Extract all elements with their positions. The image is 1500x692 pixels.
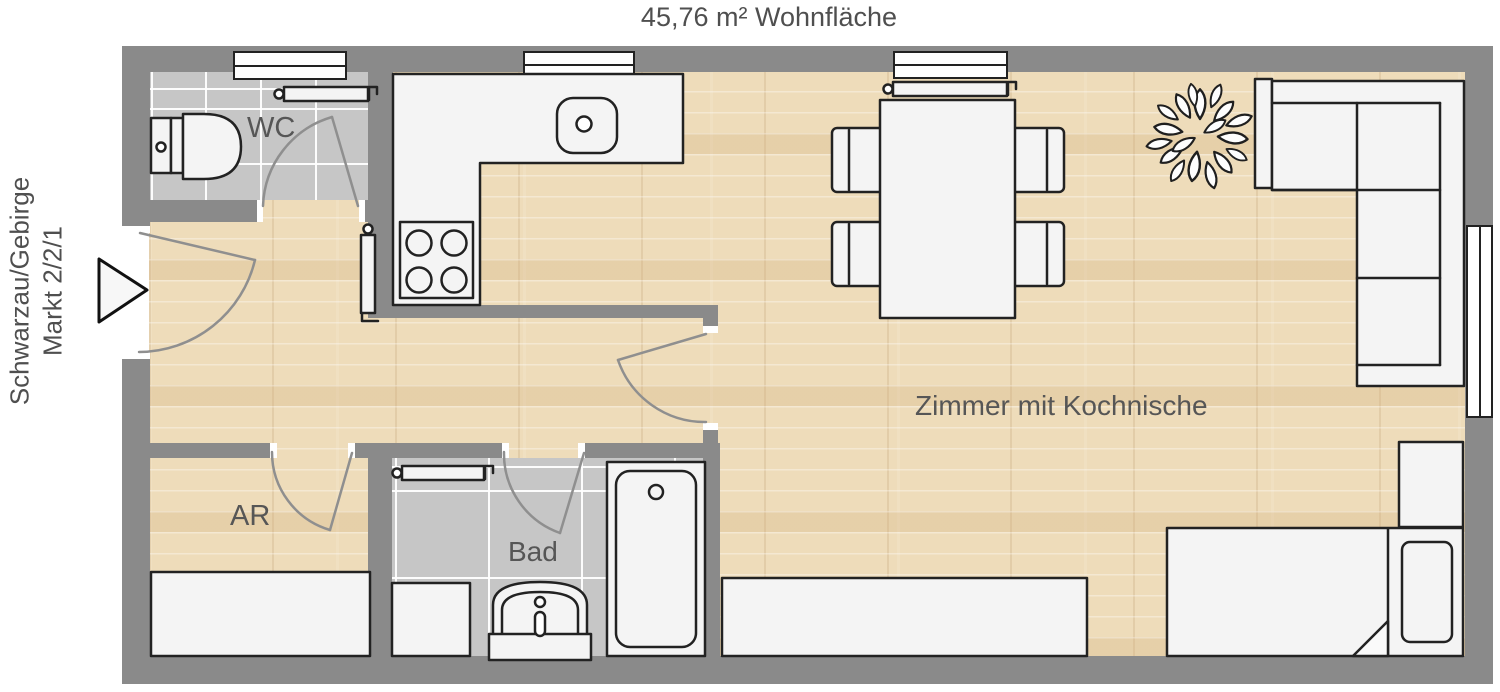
washing-machine (392, 583, 470, 656)
radiator (361, 225, 378, 322)
nightstand (1399, 442, 1463, 527)
address-label: Schwarzau/Gebirge Markt 2/2/1 (4, 177, 69, 405)
radiator (393, 466, 494, 480)
floor-plan: 45,76 m² Wohnfläche Schwarzau/Gebirge Ma… (0, 0, 1500, 692)
page-title: 45,76 m² Wohnfläche (641, 2, 897, 33)
corner-sofa (1255, 79, 1464, 386)
storage-door-arc (272, 452, 352, 530)
kitchen-sink (557, 98, 617, 153)
pillow (1402, 542, 1452, 642)
entrance-door-arc (139, 233, 255, 352)
furniture-layer (0, 0, 1500, 692)
room-label-living: Zimmer mit Kochnische (915, 390, 1208, 422)
dining-table (880, 100, 1015, 318)
sideboard (722, 578, 1087, 656)
room-label-bath: Bad (508, 536, 558, 568)
bed (1167, 528, 1463, 656)
radiator (884, 82, 1017, 96)
washbasin (489, 582, 591, 660)
room-label-wc: WC (247, 112, 295, 145)
toilet (151, 114, 241, 179)
chair (1008, 222, 1064, 286)
living-room-door-arc (618, 334, 706, 422)
plant-icon (1146, 83, 1254, 189)
entrance-arrow-icon (99, 259, 147, 322)
room-label-storage: AR (230, 500, 270, 533)
chair (1008, 128, 1064, 192)
storage-cabinet (151, 572, 370, 656)
radiator (275, 87, 378, 101)
bathtub (607, 462, 705, 656)
address-line-1: Schwarzau/Gebirge (4, 177, 37, 405)
stove (400, 222, 473, 298)
bath-door-arc (504, 452, 584, 533)
address-line-2: Markt 2/2/1 (36, 177, 69, 405)
